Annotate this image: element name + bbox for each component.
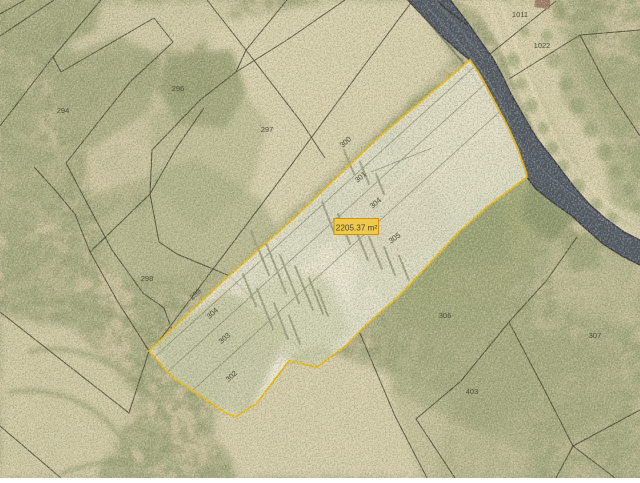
svg-text:294: 294 (57, 106, 70, 115)
svg-text:1022: 1022 (534, 41, 551, 50)
svg-text:298: 298 (141, 274, 154, 283)
svg-text:306: 306 (439, 311, 452, 320)
svg-text:2205.37 m²: 2205.37 m² (336, 224, 378, 233)
svg-text:1011: 1011 (512, 10, 528, 19)
svg-text:307: 307 (589, 331, 602, 340)
svg-text:296: 296 (172, 84, 185, 93)
svg-text:297: 297 (261, 125, 274, 134)
svg-text:403: 403 (466, 387, 479, 396)
